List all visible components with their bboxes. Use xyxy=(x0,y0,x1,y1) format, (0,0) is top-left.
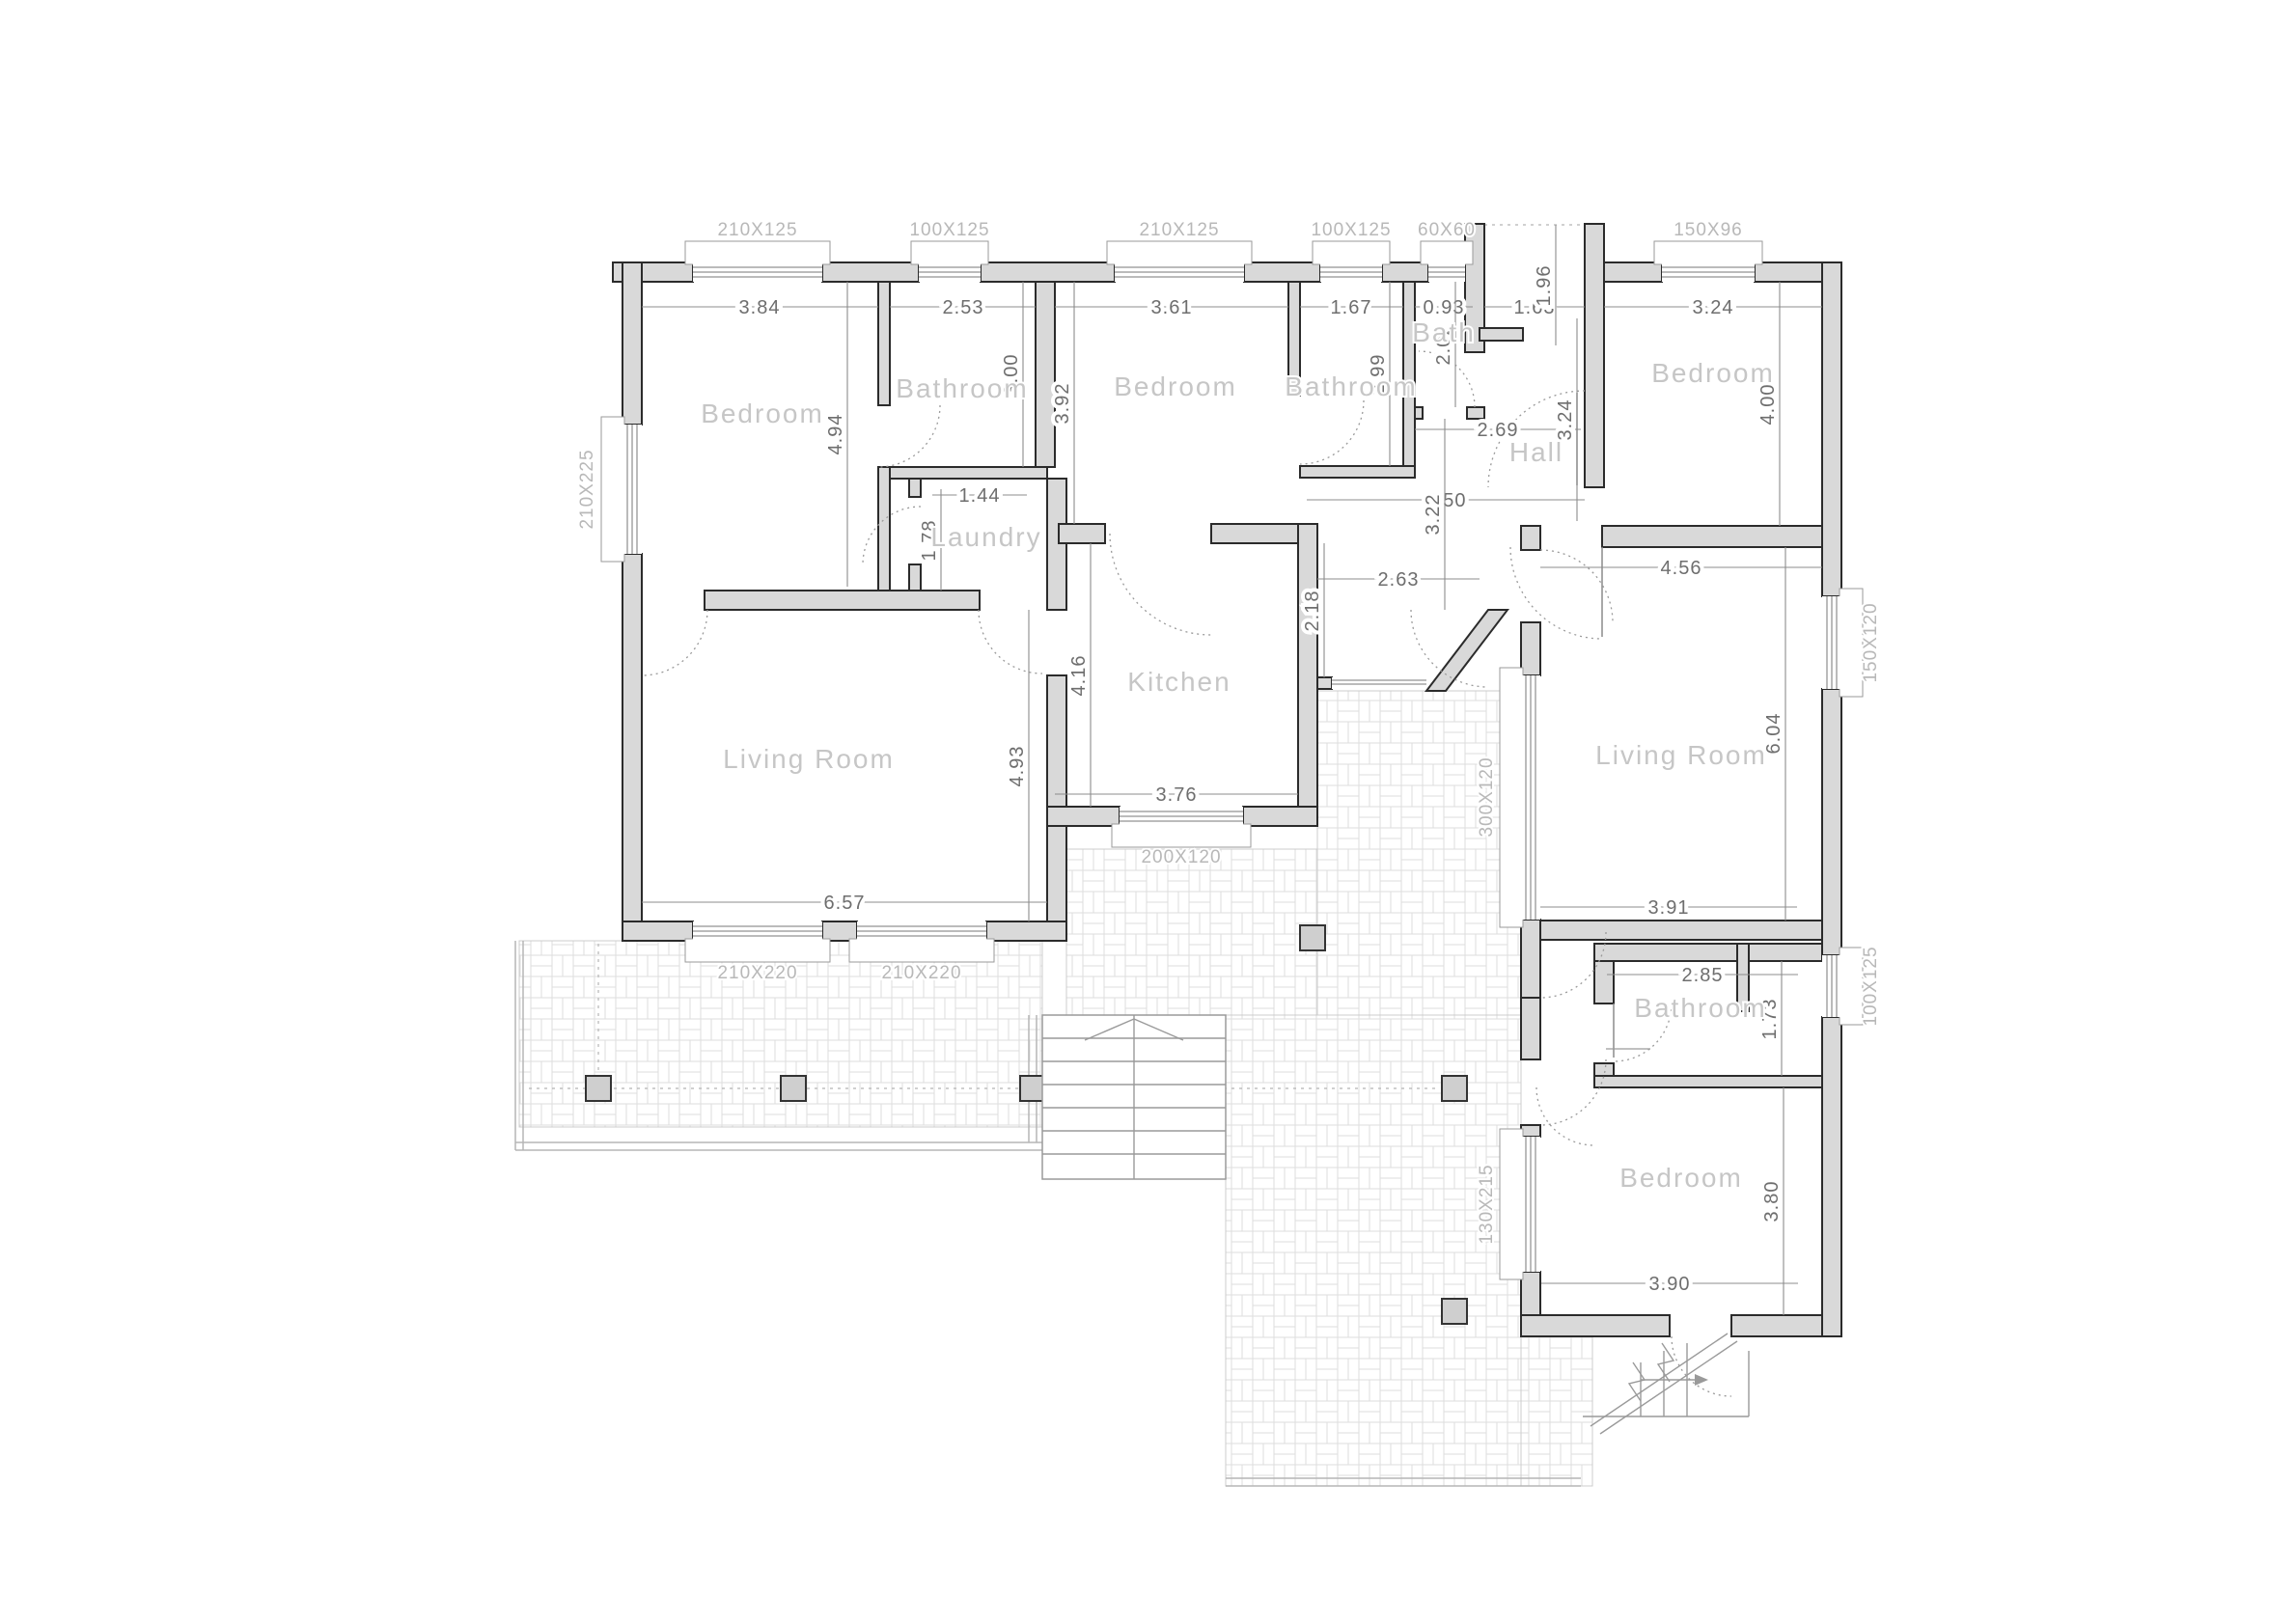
room-label-hall: Hall xyxy=(1509,437,1563,467)
dim-entry-depth: 1.96 xyxy=(1534,265,1555,307)
window-label-5: 60X60 xyxy=(1418,220,1476,240)
dim-bath-width: 0.93 xyxy=(1424,297,1465,318)
window-label-4: 100X125 xyxy=(1311,220,1391,240)
door-arc-laundry xyxy=(863,507,921,564)
window-label-10: 300X120 xyxy=(1477,756,1497,837)
dim-living2-top: 4.56 xyxy=(1661,558,1702,579)
window-label-2: 100X125 xyxy=(909,220,989,240)
room-label-laundry: Laundry xyxy=(930,522,1041,552)
dim-hall-height: 3.22 xyxy=(1423,494,1444,536)
dim-living1-width: 6.57 xyxy=(824,893,866,914)
dim-bedroom3-width: 3.24 xyxy=(1693,297,1734,318)
dim-bathroom2-width: 1.67 xyxy=(1331,297,1372,318)
window-label-6: 150X96 xyxy=(1674,220,1743,240)
dim-bathroom3-width: 2.85 xyxy=(1682,965,1724,986)
room-label-bedroom-4: Bedroom xyxy=(1619,1163,1743,1193)
floor-plan: 3.84 2.53 3.61 1.67 0.93 1.63 3.24 4.94 … xyxy=(0,0,2296,1622)
window-label-9: 150X120 xyxy=(1861,602,1881,682)
door-arc-bathroom2 xyxy=(1300,400,1364,464)
dim-bathroom1-width: 2.53 xyxy=(943,297,984,318)
floor-plan-drawing: 3.84 2.53 3.61 1.67 0.93 1.63 3.24 4.94 … xyxy=(0,0,2296,1622)
dim-corridor-depth: 2.18 xyxy=(1302,591,1323,632)
window-label-11: 130X215 xyxy=(1477,1164,1497,1244)
window-label-8: 200X120 xyxy=(1141,847,1221,867)
room-label-bathroom-3: Bathroom xyxy=(1634,993,1766,1023)
room-label-living-room-2: Living Room xyxy=(1595,740,1767,770)
dim-laundry-width: 1.44 xyxy=(959,485,1001,507)
dim-bedroom3-height: 4.00 xyxy=(1757,384,1779,426)
door-arc-bedroom1 xyxy=(642,610,707,675)
stair-break-mark xyxy=(1629,1362,1645,1401)
dim-living1-height: 4.93 xyxy=(1007,746,1028,787)
window-label-12: 100X125 xyxy=(1861,946,1881,1026)
column xyxy=(586,1076,611,1101)
door-arc-kitchen xyxy=(1110,534,1211,635)
room-label-bedroom-2: Bedroom xyxy=(1114,371,1237,401)
window-label-3: 210X125 xyxy=(1139,220,1219,240)
room-label-bath: Bath xyxy=(1412,317,1476,347)
dim-living2-bottom: 3.91 xyxy=(1648,897,1690,919)
dim-bedroom4-height: 3.80 xyxy=(1761,1181,1783,1223)
column xyxy=(1300,925,1325,950)
column xyxy=(1442,1299,1467,1324)
room-label-bathroom-1: Bathroom xyxy=(896,373,1028,403)
stair-arrow-head xyxy=(1695,1374,1708,1386)
room-label-living-room-1: Living Room xyxy=(723,744,895,774)
window-label-13: 210X220 xyxy=(717,963,797,983)
window-label-14: 210X220 xyxy=(881,963,961,983)
dim-kitchen-width: 3.76 xyxy=(1156,784,1198,806)
room-label-bedroom-1: Bedroom xyxy=(701,399,824,428)
dim-kitchen-height: 4.16 xyxy=(1068,655,1090,697)
dim-bedroom2-width: 3.61 xyxy=(1151,297,1193,318)
column xyxy=(1020,1076,1045,1101)
dim-bedroom4-width: 3.90 xyxy=(1649,1274,1691,1295)
room-label-bedroom-3: Bedroom xyxy=(1651,358,1775,388)
door-arc-bedroom4 xyxy=(1536,1087,1594,1145)
dim-bedroom1-width: 3.84 xyxy=(739,297,781,318)
door-arc-living1-corridor xyxy=(979,610,1042,674)
dim-bedroom2-height: 3.92 xyxy=(1052,383,1073,425)
window-label-1: 210X125 xyxy=(717,220,797,240)
door-arc-exterior xyxy=(1672,1336,1731,1396)
door-arc-bathroom1 xyxy=(878,405,940,467)
column xyxy=(781,1076,806,1101)
column xyxy=(1442,1076,1467,1101)
room-label-bathroom-2: Bathroom xyxy=(1285,371,1417,401)
angled-wall xyxy=(1426,610,1508,691)
dim-corridor-width: 2.63 xyxy=(1378,569,1420,591)
dim-bedroom1-height: 4.94 xyxy=(825,414,846,455)
stairs-exterior xyxy=(1583,1333,1749,1434)
stairs-main xyxy=(1042,1015,1226,1179)
room-label-kitchen: Kitchen xyxy=(1127,667,1231,697)
dim-hall-east: 3.24 xyxy=(1555,399,1576,441)
window-label-7: 210X225 xyxy=(577,449,597,529)
stair-break-mark xyxy=(1658,1343,1674,1382)
